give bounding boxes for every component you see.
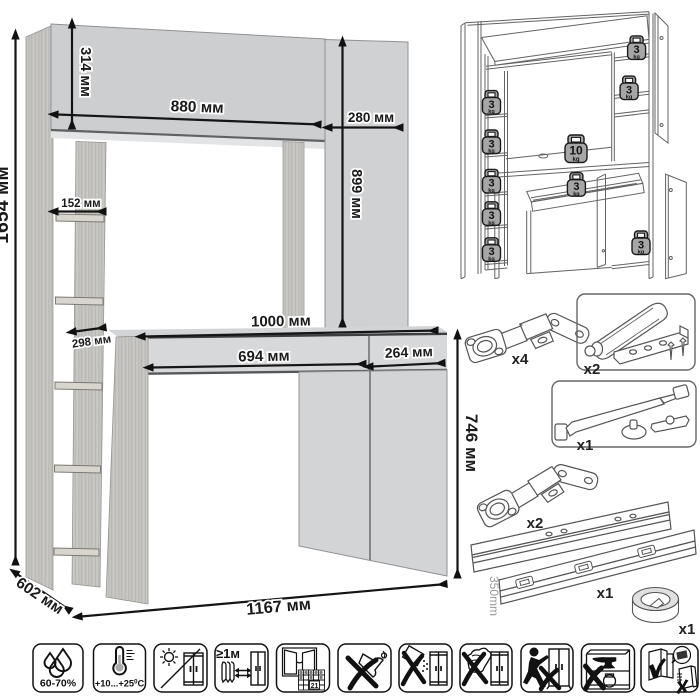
svg-text:x1: x1	[597, 585, 614, 602]
svg-text:264 мм: 264 мм	[385, 343, 433, 361]
svg-text:1654 мм: 1654 мм	[0, 166, 13, 244]
svg-text:≥1м: ≥1м	[216, 646, 240, 661]
svg-text:314 мм: 314 мм	[77, 47, 93, 97]
svg-text:350mm: 350mm	[487, 576, 501, 616]
svg-text:21: 21	[311, 683, 319, 690]
svg-text:x1: x1	[679, 621, 696, 638]
svg-text:x4: x4	[512, 351, 529, 368]
svg-text:880 мм: 880 мм	[170, 98, 224, 117]
svg-text:280 мм: 280 мм	[348, 110, 394, 125]
svg-text:x1: x1	[577, 437, 594, 454]
svg-text:899 мм: 899 мм	[348, 169, 364, 219]
svg-text:694 мм: 694 мм	[238, 348, 290, 366]
svg-text:60-70%: 60-70%	[40, 678, 77, 690]
svg-text:746 мм: 746 мм	[462, 414, 481, 472]
svg-text:1000 мм: 1000 мм	[251, 312, 311, 330]
svg-text:x2: x2	[584, 361, 601, 378]
svg-text:+10...+250C: +10...+250C	[95, 679, 145, 689]
svg-text:152 мм: 152 мм	[61, 198, 100, 210]
